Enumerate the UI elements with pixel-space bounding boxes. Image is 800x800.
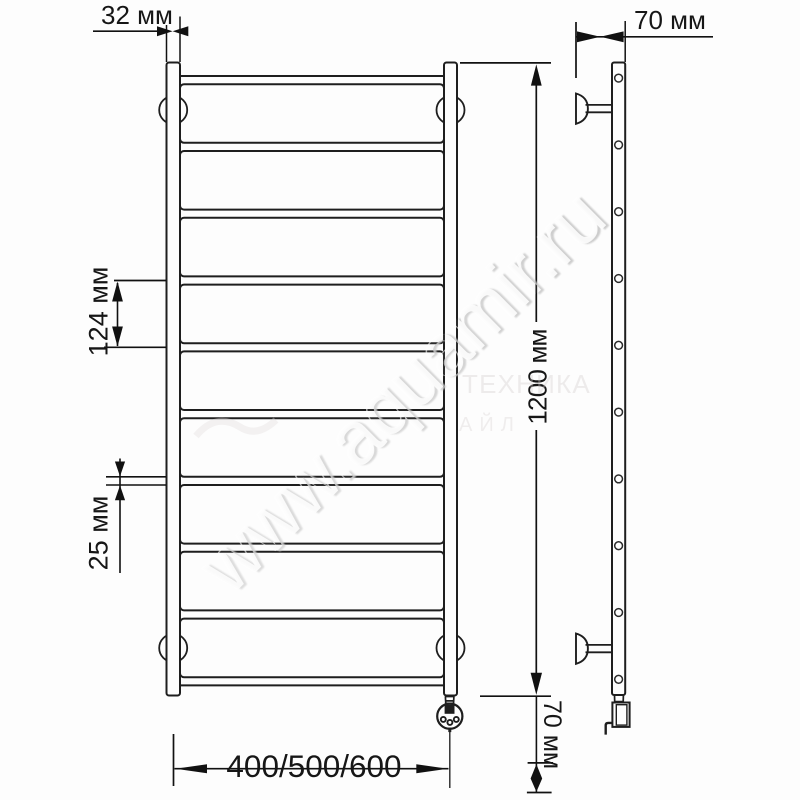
svg-text:70 мм: 70 мм [634,5,706,35]
svg-text:70 мм: 70 мм [538,700,566,769]
svg-text:124 мм: 124 мм [84,267,114,357]
svg-text:АЙЛ: АЙЛ [459,412,521,436]
svg-text:25 мм: 25 мм [84,496,114,571]
svg-text:32 мм: 32 мм [101,0,173,30]
svg-text:400/500/600: 400/500/600 [226,748,401,784]
